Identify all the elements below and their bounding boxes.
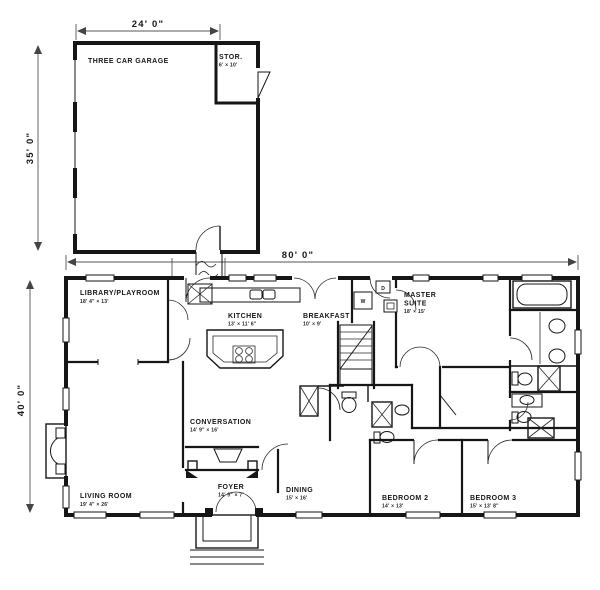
bedroom2-size: 14' × 13' (382, 504, 403, 510)
hall-bath-fixtures (342, 392, 409, 443)
labels: 24' 0" 35' 0" 80' 0" 40' 0" THREE CAR GA… (16, 19, 516, 510)
storage-label: STOR. (219, 54, 243, 61)
house-width-dim: 80' 0" (282, 250, 314, 261)
toilet (512, 372, 518, 385)
exterior-doors (184, 275, 392, 518)
kitchen-sink (250, 290, 262, 299)
dining-size: 15' × 16' (286, 496, 307, 502)
living-room-fireplace (46, 424, 70, 478)
conversation-size: 14' 9" × 16' (190, 428, 219, 434)
living-label: LIVING ROOM (80, 493, 132, 500)
breakfast-size: 10' × 9' (303, 322, 321, 328)
conversation-label: CONVERSATION (190, 419, 251, 426)
breakfast-label: BREAKFAST (303, 313, 350, 320)
garage-label: THREE CAR GARAGE (88, 58, 169, 65)
walkway (196, 252, 222, 276)
dining-label: DINING (286, 487, 313, 494)
foyer-label: FOYER (218, 484, 244, 491)
conversation-fireplace (186, 444, 288, 478)
garage-walls (73, 43, 271, 255)
vanity-sink (549, 319, 565, 333)
bedroom3-label: BEDROOM 3 (470, 495, 516, 502)
floor-plan-drawing: 24' 0" 35' 0" 80' 0" 40' 0" THREE CAR GA… (0, 0, 600, 590)
living-size: 19' 4" × 26' (80, 502, 109, 508)
dryer-label: D (381, 286, 385, 292)
garage-depth-dim: 35' 0" (25, 132, 36, 164)
library-label: LIBRARY/PLAYROOM (80, 290, 160, 297)
master-bath-fixtures (512, 281, 571, 391)
toilet-2 (374, 432, 380, 443)
washer-label: W (361, 299, 366, 305)
floor-plan-page: 24' 0" 35' 0" 80' 0" 40' 0" THREE CAR GA… (0, 0, 600, 590)
laundry-appliances (354, 281, 397, 312)
kitchen-label: KITCHEN (228, 313, 262, 320)
sink (395, 405, 409, 415)
storage-size: 6' × 10' (219, 63, 237, 69)
house-depth-dim: 40' 0" (16, 384, 27, 416)
garage-width-dim: 24' 0" (132, 19, 164, 30)
foyer-size: 14' 9" × 7' (218, 493, 244, 499)
bedroom3-size: 15' × 13' 8" (470, 504, 499, 510)
sink (520, 396, 534, 405)
bedroom2-label: BEDROOM 2 (382, 495, 428, 502)
entry-porch (190, 515, 264, 564)
master-size: 18' × 15' (404, 309, 425, 315)
master-label-2: SUITE (404, 301, 427, 308)
interior-doors (168, 290, 532, 464)
master-label-1: MASTER (404, 292, 436, 299)
library-size: 18' 4" × 13' (80, 299, 109, 305)
kitchen-size: 13' × 11' 6" (228, 322, 257, 328)
windows (63, 275, 581, 518)
staircase (340, 325, 372, 385)
